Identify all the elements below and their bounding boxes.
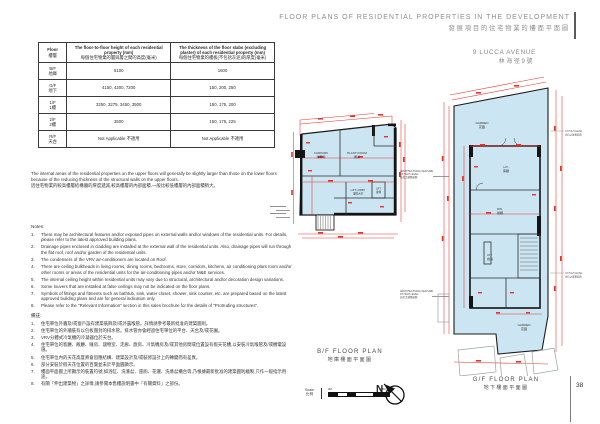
intro-zh: 因住宅物業的較高樓層結構牆的厚度遞減,較高樓層的內部面積,一般比較低樓層的內部面…: [31, 183, 289, 189]
scale-divider: [321, 388, 322, 399]
notes-section: Notes: 1.There may be architectural feat…: [31, 224, 293, 388]
note-item: 1.There may be architectural features an…: [31, 232, 293, 243]
notes-label: Notes:: [31, 224, 293, 230]
bf-lift-label-zh: 電梯: [376, 190, 382, 194]
bf-plan-caption-zh: 地庫樓面平面圖: [288, 356, 412, 363]
property-name: 9 LUCCA AVENUE: [473, 49, 536, 56]
property-name-zh: 林海徑9號: [499, 56, 534, 65]
brochure-page: { "header": { "title_en": "FLOOR PLANS O…: [0, 0, 600, 424]
col-header-floor: Floor樓層: [39, 43, 67, 63]
tiny-annotation: [270, 213, 286, 214]
col-header-height: The floor-to-floor height of each reside…: [67, 43, 171, 63]
gf-floor-plan: GARDEN 花園 LIV. 客廳 DIN. 飯廳 KIT. 廚房 GARDEN…: [436, 66, 588, 376]
note-item: 3.VRV分體式冷氣機的冷凝器位於天台。: [31, 335, 293, 341]
gf-kit-label-zh: 廚房: [487, 256, 493, 261]
note-item: 4.There are ceiling bulkheads in living …: [31, 264, 293, 275]
svg-text:N: N: [376, 384, 383, 395]
bf-lift-lobby-label-zh: 電梯大堂: [353, 192, 364, 196]
table-row: 1/F1樓 3250, 3275, 3450, 3500150, 175, 20…: [39, 97, 275, 114]
gf-liv-label-zh: 客廳: [503, 168, 509, 173]
gf-garden2-label-zh: 花園: [521, 326, 527, 331]
intro-paragraph: The internal areas of the residential pr…: [31, 171, 289, 188]
note-item: 2.Drainage pipes enclosed in cladding ar…: [31, 244, 293, 255]
bf-lift-label: LIFT: [376, 187, 382, 191]
note-item: 5.The internal ceiling height within res…: [31, 277, 293, 283]
gf-plan-caption-zh: 地下樓面平面圖: [430, 384, 582, 391]
annotation-arch-feature: ARCHITECTURAL FEATUREAT HIGH LEVEL高位之建築裝…: [400, 170, 438, 179]
gf-plan-caption: G/F FLOOR PLAN: [430, 377, 582, 383]
page-number: 38: [576, 382, 583, 389]
bf-lift-lobby-label: LIFT LOBBY: [351, 188, 366, 192]
col-header-thickness: The thickness of the floor slabs (exclud…: [171, 43, 275, 63]
note-item: 6.部分安裝於假天花位置的百葉並未於平面圖顯示。: [31, 362, 293, 368]
page-title: FLOOR PLANS OF RESIDENTIAL PROPERTIES IN…: [279, 14, 570, 21]
note-item: 7.Symbols of fittings and fitments such …: [31, 291, 293, 302]
gf-annotation-zh: 高位之建築裝飾: [565, 275, 582, 279]
note-item: 6.Some louvers that are installed at fal…: [31, 284, 293, 290]
table-row: R/F天台 Not Applicable 不適用Not Applicable 不…: [39, 131, 275, 148]
bf-floor-plan: CARPARK 停車場 PLANT ROOM 機房 LIFT LOBBY 電梯大…: [288, 112, 410, 244]
bf-room1-label-zh: 停車場: [316, 154, 325, 159]
scale-start-label: 0M: [328, 387, 332, 391]
note-item: 8.有關「伸出建築物」之詳情,請參閱本售樓說明書中「有關資料」之部份。: [31, 381, 293, 387]
note-item: 5.住宅單位內的天花高度將會因應結構、建築設計及/或裝修設計上的轉變而有差異。: [31, 355, 293, 361]
leader-line: [276, 217, 290, 218]
note-item: 1.住宅單位外牆及/或窗戶設有建築裝飾及/或外露喉管。詳情請參考最新批准的建築圖…: [31, 321, 293, 327]
floor-spec-table: Floor樓層 The floor-to-floor height of eac…: [38, 42, 275, 148]
tiny-annotation: [270, 206, 286, 207]
note-item: 4.住宅單位的客廳、飯廳、睡房、儲物室、走廊、廚房、冷氣機房及/或其他房間或位置…: [31, 342, 293, 353]
north-arrow-icon: N: [374, 379, 408, 409]
page-title-zh: 發展項目的住宅物業的樓面平面圖: [449, 23, 570, 32]
leader-line: [276, 210, 290, 211]
note-item: 8.Please refer to the "Relevant Informat…: [31, 303, 293, 309]
annotation-arch-feature: ARCHITECTURAL FEATUREAT HIGH LEVEL高位之建築裝…: [400, 290, 438, 299]
note-item: 7.樓面平面圖上所顯示的裝置符號,如浴缸、洗滌盆、座廁、花灑、洗滌盆櫃台等,乃根…: [31, 369, 293, 380]
gf-din-label-zh: 飯廳: [497, 210, 503, 215]
table-row: 2/F2樓 3500150, 175, 225: [39, 114, 275, 131]
scale-label: Scale比例: [305, 388, 314, 396]
header-rule: [574, 12, 576, 39]
bf-room2-label-zh: 機房: [354, 154, 360, 159]
intro-en: The internal areas of the residential pr…: [31, 171, 289, 182]
bf-plan-caption: B/F FLOOR PLAN: [288, 349, 412, 355]
table-row: B/F地庫 51001600: [39, 63, 275, 80]
table-row: G/F地下 4150, 4200, 7200150, 200, 250: [39, 80, 275, 97]
note-item: 3.The condensers of the VRV air-conditio…: [31, 257, 293, 263]
gf-garden-label-zh: 花園: [479, 124, 485, 129]
notes-zh: 備註: 1.住宅單位外牆及/或窗戶設有建築裝飾及/或外露喉管。詳情請參考最新批准…: [31, 313, 293, 387]
gf-annotation-zh: 高位之建築裝飾: [565, 133, 582, 137]
note-item: 2.住宅單位的外牆裝有以包板圍封的排水管。排水管亦會經過住宅單位的平台、天台及/…: [31, 328, 293, 334]
page-rule: [570, 376, 571, 422]
